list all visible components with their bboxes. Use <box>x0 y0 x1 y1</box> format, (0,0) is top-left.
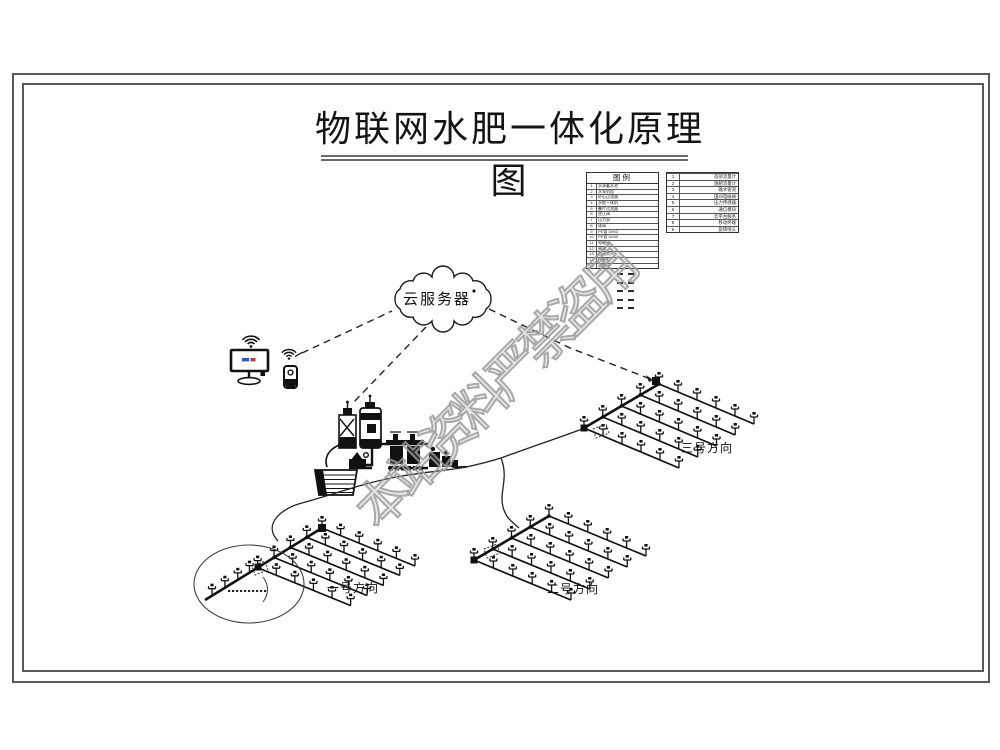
sprinkler-head <box>569 569 572 572</box>
sprinkler-head <box>492 556 495 559</box>
link-cloud-field3 <box>489 309 653 380</box>
supply-valve <box>471 557 478 564</box>
sprinkler-head <box>658 391 661 394</box>
sprinkler-head <box>289 535 292 538</box>
sprinkler-head <box>695 388 698 391</box>
sprinkler-head <box>586 520 589 523</box>
sprinkler-head <box>714 396 717 399</box>
pump-station <box>315 395 467 495</box>
sprinkler-head <box>236 568 239 571</box>
wifi-icon-small <box>282 350 302 360</box>
sprinkler-head <box>326 551 329 554</box>
sprinkler-head <box>626 555 629 558</box>
sprinkler-head <box>291 553 294 556</box>
sprinkler-head <box>752 412 755 415</box>
meter-cluster <box>429 447 467 468</box>
sprinkler-head <box>607 566 610 569</box>
supply-valve <box>581 425 588 432</box>
water-basin <box>315 470 357 495</box>
sprinkler-head <box>696 407 699 410</box>
pipe-to-field2 <box>501 458 519 528</box>
sprinkler-head <box>347 576 350 579</box>
sprinkler-head <box>676 380 679 383</box>
sprinkler-head <box>715 434 718 437</box>
fertilizer-tank-b <box>360 395 381 448</box>
sprinkler-head <box>620 394 623 397</box>
fertilizer-tank-a <box>339 401 356 448</box>
sprinkler-head <box>548 523 551 526</box>
sprinkler-head <box>588 558 591 561</box>
sprinkler-head <box>307 543 310 546</box>
sprinkler-head <box>275 563 278 566</box>
lateral-pipe <box>622 406 717 446</box>
sprinkler-head <box>382 573 385 576</box>
sprinkler-head <box>625 536 628 539</box>
drawing-sheet: 物联网水肥一体化原理图 云服务器 <box>0 0 1000 750</box>
sprinkler-head <box>361 548 364 551</box>
sprinkler-head <box>658 429 661 432</box>
lateral-pipe <box>549 516 646 556</box>
sprinkler-head <box>620 432 623 435</box>
sprinkler-head <box>342 541 345 544</box>
lateral-pipe <box>512 538 609 578</box>
suction-pipe <box>326 445 339 467</box>
sprinkler-head <box>734 423 737 426</box>
sprinkler-head <box>606 528 609 531</box>
lateral-pipe <box>530 527 627 567</box>
sprinkler-head <box>510 526 513 529</box>
screen-chart-blue <box>242 358 249 361</box>
cloud-dot <box>472 289 475 292</box>
sprinkler-head <box>345 558 348 561</box>
sprinkler-head <box>644 544 647 547</box>
sprinkler-head <box>639 383 642 386</box>
end-valve <box>318 524 326 532</box>
sprinkler-head <box>531 572 534 575</box>
sprinkler-head <box>677 437 680 440</box>
sprinkler-head <box>248 561 251 564</box>
sprinkler-head <box>588 577 591 580</box>
sprinkler-head <box>511 564 514 567</box>
phone-icon <box>282 350 302 388</box>
sprinkler-head <box>657 372 660 375</box>
field3-label: 三号方向 <box>681 440 733 455</box>
lateral-pipe <box>322 528 415 566</box>
sprinkler-head <box>530 553 533 556</box>
sprinkler-head <box>310 561 313 564</box>
monitor-icon <box>231 336 268 384</box>
sprinkler-head <box>472 548 475 551</box>
sprinkler-head <box>733 404 736 407</box>
sprinkler-head <box>529 515 532 518</box>
sprinkler-head <box>358 531 361 534</box>
sprinkler-head <box>658 410 661 413</box>
field2-label: 二号方向 <box>547 581 599 596</box>
sprinkler-head <box>677 456 680 459</box>
sprinkler-head <box>413 554 416 557</box>
sprinkler-head <box>547 504 550 507</box>
sprinkler-head <box>223 576 226 579</box>
sprinkler-head <box>568 550 571 553</box>
cloud-server-icon: 云服务器 <box>395 266 491 332</box>
sprinkler-head <box>549 561 552 564</box>
wifi-icon <box>242 336 259 348</box>
sprinkler-head <box>380 556 383 559</box>
sprinkler-head <box>272 546 275 549</box>
sprinkler-head <box>511 545 514 548</box>
lateral-pipe <box>584 428 679 468</box>
screen-chart-red <box>251 358 256 361</box>
schematic-drawing: 云服务器 <box>0 0 1000 750</box>
sprinkler-head <box>606 547 609 550</box>
sprinkler-head <box>601 405 604 408</box>
sprinkler-head <box>529 534 532 537</box>
sprinkler-head <box>639 440 642 443</box>
lateral-pipe <box>640 395 735 435</box>
sprinkler-head <box>376 539 379 542</box>
sprinkler-head <box>320 516 323 519</box>
field1-label: 一号方向 <box>327 580 379 595</box>
sprinkler-head <box>328 568 331 571</box>
end-valve <box>652 377 660 385</box>
sprinkler-head <box>312 578 315 581</box>
sprinkler-head <box>715 415 718 418</box>
sprinkler-head <box>567 512 570 515</box>
sprinkler-head <box>582 416 585 419</box>
wireless-links <box>302 309 653 405</box>
filter-bank <box>386 432 424 471</box>
sprinkler-head <box>587 539 590 542</box>
sprinkler-head <box>677 399 680 402</box>
sprinkler-head <box>639 402 642 405</box>
cloud-server-label: 云服务器 <box>403 291 471 308</box>
sprinkler-head <box>549 542 552 545</box>
sprinkler-head <box>567 531 570 534</box>
lateral-pipe <box>659 384 754 424</box>
sprinkler-head <box>398 563 401 566</box>
sprinkler-head <box>639 421 642 424</box>
sprinkler-head <box>256 556 259 559</box>
sprinkler-head <box>620 413 623 416</box>
field-grid-1 <box>205 516 419 606</box>
monitor-port <box>261 372 266 377</box>
link-phone-cloud <box>302 311 392 353</box>
sprinkler-head <box>339 524 342 527</box>
sprinkler-head <box>395 546 398 549</box>
link-cloud-station <box>351 327 426 405</box>
link-arrowhead <box>646 375 653 382</box>
sprinkler-head <box>696 426 699 429</box>
sprinkler-icon <box>546 507 553 517</box>
sprinkler-head <box>210 584 213 587</box>
lateral-pipe <box>290 547 383 585</box>
sprinkler-head <box>491 537 494 540</box>
main-pipe <box>205 528 322 600</box>
sprinkler-head <box>305 525 308 528</box>
sprinkler-head <box>324 533 327 536</box>
lateral-pipe <box>307 537 400 575</box>
pump-icon <box>349 452 368 469</box>
sprinkler-head <box>293 571 296 574</box>
sprinkler-head <box>658 448 661 451</box>
sprinkler-head <box>363 566 366 569</box>
sprinkler-head <box>677 418 680 421</box>
